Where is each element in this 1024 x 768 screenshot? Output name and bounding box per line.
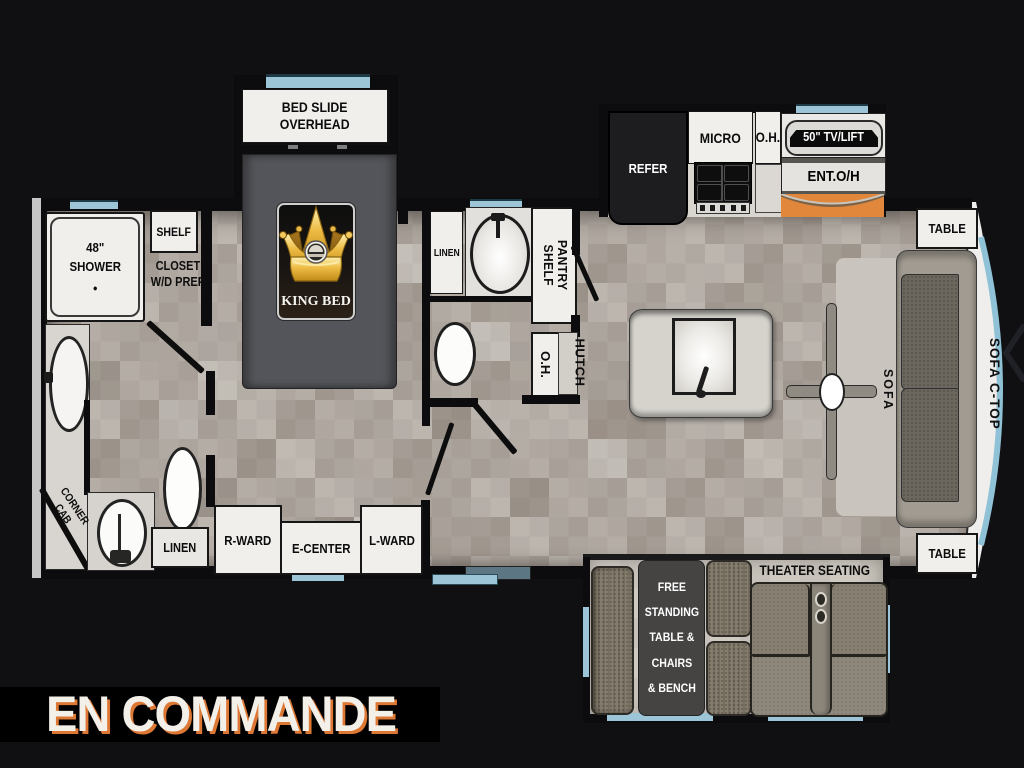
- svg-text:SOFA C-TOP: SOFA C-TOP: [987, 338, 1002, 430]
